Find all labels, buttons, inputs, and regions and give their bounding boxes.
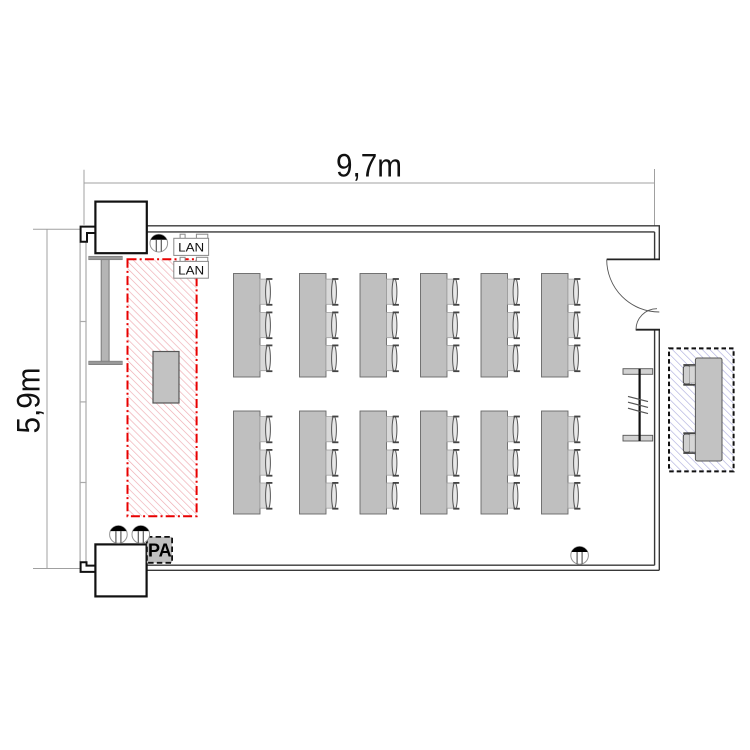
svg-text:5,9m: 5,9m bbox=[11, 368, 47, 434]
svg-text:9,7m: 9,7m bbox=[336, 148, 402, 184]
svg-text:LAN: LAN bbox=[178, 264, 204, 278]
svg-text:PA: PA bbox=[148, 540, 172, 561]
svg-text:LAN: LAN bbox=[178, 241, 204, 255]
